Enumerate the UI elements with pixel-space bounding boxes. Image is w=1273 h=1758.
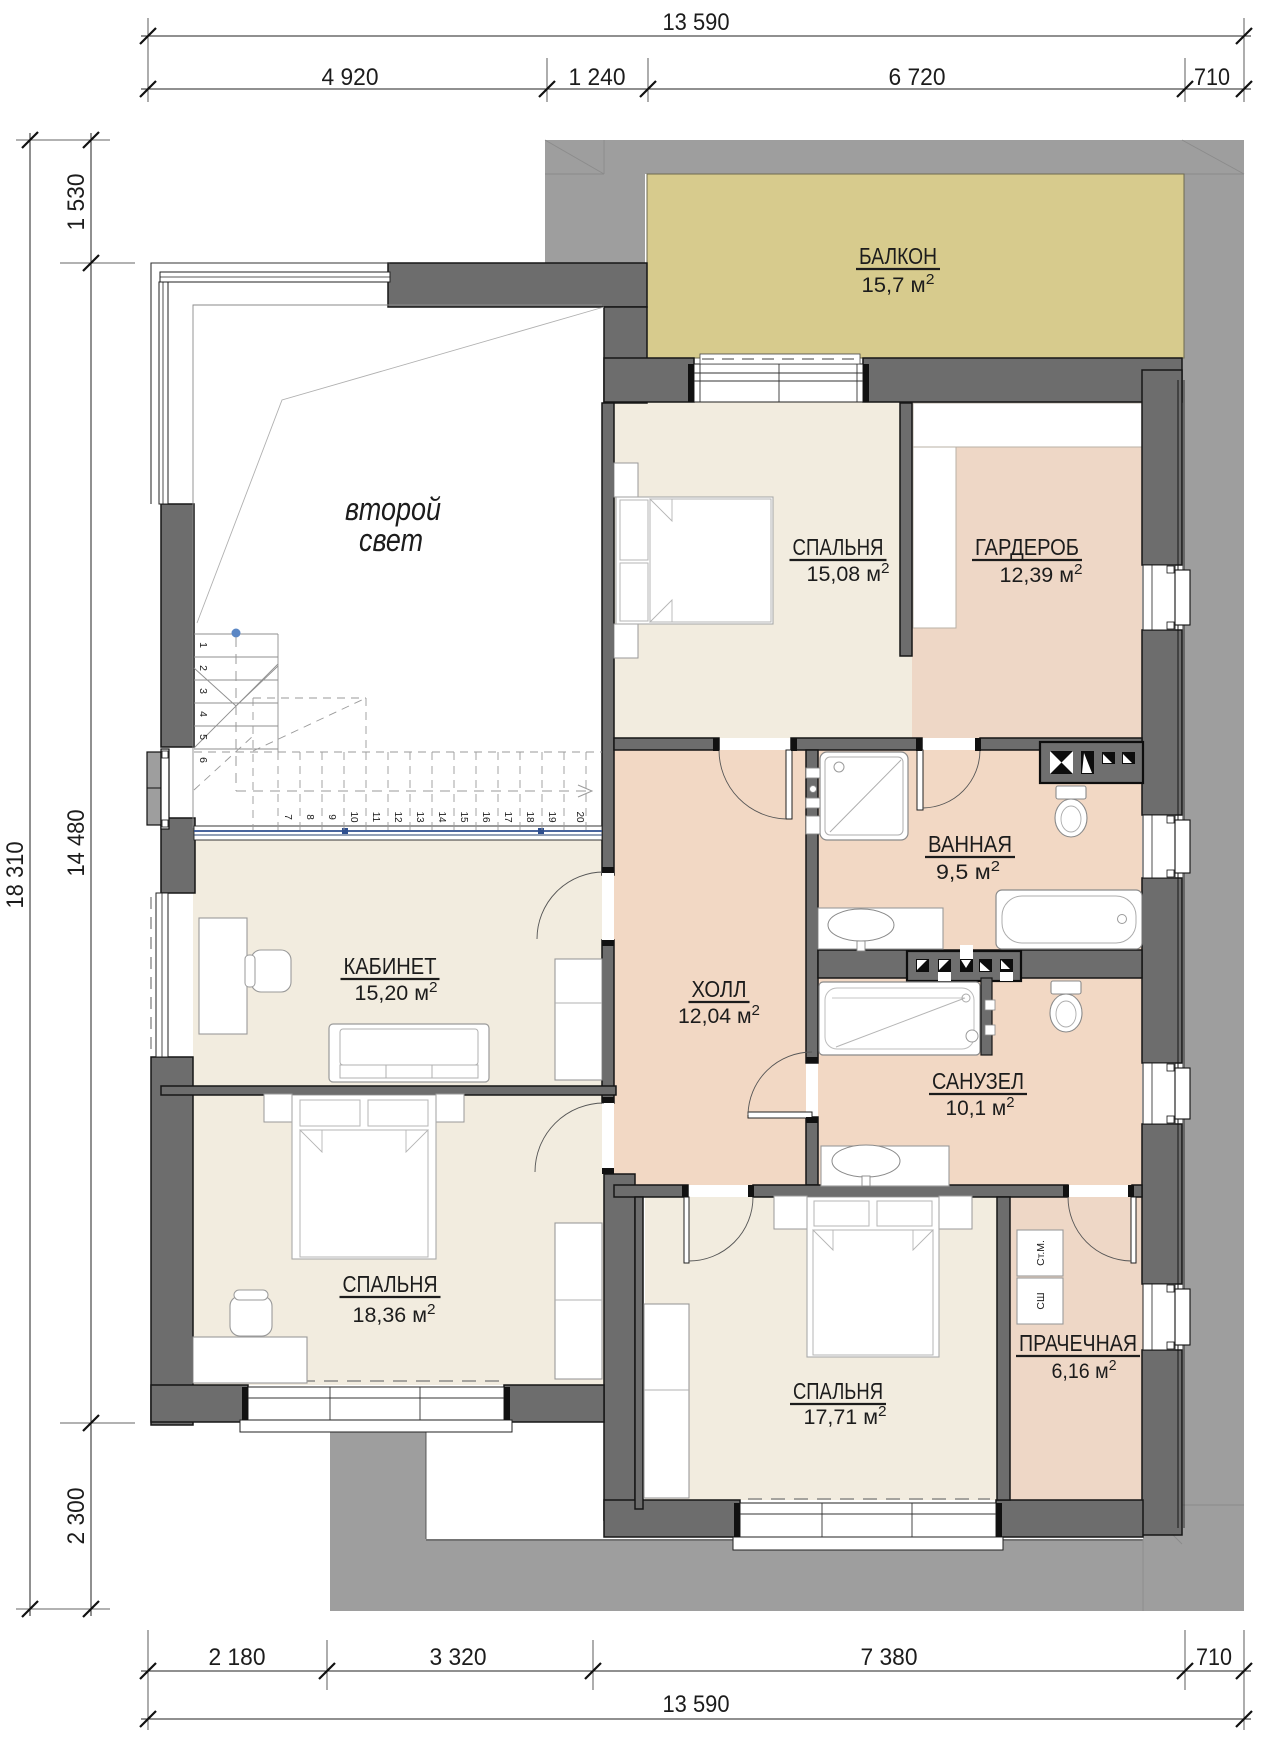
svg-text:ВАННАЯ: ВАННАЯ	[928, 831, 1012, 857]
svg-text:7: 7	[282, 814, 293, 820]
svg-text:ХОЛЛ: ХОЛЛ	[692, 976, 747, 1002]
svg-text:20: 20	[574, 811, 585, 823]
svg-text:3: 3	[197, 688, 209, 694]
svg-text:19: 19	[546, 811, 557, 823]
svg-text:1 530: 1 530	[63, 174, 90, 231]
svg-text:6,16 м2: 6,16 м2	[1052, 1357, 1117, 1383]
svg-text:9,5 м2: 9,5 м2	[936, 858, 1000, 884]
svg-text:11: 11	[370, 812, 381, 823]
svg-text:15: 15	[458, 811, 469, 823]
svg-text:13 590: 13 590	[663, 9, 730, 36]
svg-text:15,08 м2: 15,08 м2	[807, 560, 890, 586]
svg-text:710: 710	[1194, 64, 1230, 91]
svg-text:СПАЛЬНЯ: СПАЛЬНЯ	[343, 1271, 438, 1297]
svg-text:ПРАЧЕЧНАЯ: ПРАЧЕЧНАЯ	[1019, 1330, 1137, 1356]
svg-text:18: 18	[524, 811, 535, 823]
svg-text:5: 5	[197, 734, 209, 740]
svg-text:2 300: 2 300	[63, 1488, 90, 1545]
svg-text:КАБИНЕТ: КАБИНЕТ	[344, 953, 437, 979]
svg-text:ГАРДЕРОБ: ГАРДЕРОБ	[975, 534, 1079, 560]
svg-text:СШ: СШ	[1035, 1292, 1047, 1309]
svg-text:1: 1	[197, 642, 209, 648]
svg-text:4: 4	[197, 711, 209, 717]
svg-text:14: 14	[436, 811, 447, 823]
svg-text:8: 8	[304, 814, 315, 820]
svg-text:4 920: 4 920	[322, 64, 379, 91]
svg-text:1 240: 1 240	[569, 64, 626, 91]
svg-text:Ст.М.: Ст.М.	[1035, 1240, 1047, 1266]
svg-text:17: 17	[502, 811, 513, 823]
svg-text:6 720: 6 720	[889, 64, 946, 91]
svg-text:18 310: 18 310	[2, 842, 29, 909]
svg-text:свет: свет	[359, 522, 423, 558]
svg-text:16: 16	[480, 811, 491, 823]
svg-text:2: 2	[197, 665, 209, 671]
svg-text:10: 10	[348, 811, 359, 823]
svg-text:10,1 м2: 10,1 м2	[946, 1094, 1015, 1120]
svg-text:12,04 м2: 12,04 м2	[678, 1002, 760, 1028]
svg-text:15,7 м2: 15,7 м2	[862, 271, 935, 297]
svg-text:6: 6	[197, 757, 209, 763]
svg-text:17,71 м2: 17,71 м2	[804, 1403, 887, 1429]
svg-text:13 590: 13 590	[663, 1691, 730, 1718]
svg-text:18,36 м2: 18,36 м2	[353, 1301, 436, 1327]
svg-text:15,20 м2: 15,20 м2	[355, 979, 438, 1005]
svg-text:14 480: 14 480	[63, 810, 90, 877]
svg-text:СПАЛЬНЯ: СПАЛЬНЯ	[793, 1378, 883, 1404]
svg-text:2 180: 2 180	[209, 1644, 266, 1671]
svg-text:9: 9	[326, 814, 337, 820]
svg-text:САНУЗЕЛ: САНУЗЕЛ	[932, 1068, 1024, 1094]
svg-text:12,39 м2: 12,39 м2	[1000, 561, 1083, 587]
svg-text:710: 710	[1196, 1644, 1232, 1671]
svg-text:7 380: 7 380	[861, 1644, 918, 1671]
svg-text:СПАЛЬНЯ: СПАЛЬНЯ	[793, 534, 884, 560]
svg-text:БАЛКОН: БАЛКОН	[859, 243, 937, 269]
svg-text:13: 13	[414, 811, 425, 823]
svg-text:3 320: 3 320	[430, 1644, 487, 1671]
svg-text:12: 12	[392, 811, 403, 823]
